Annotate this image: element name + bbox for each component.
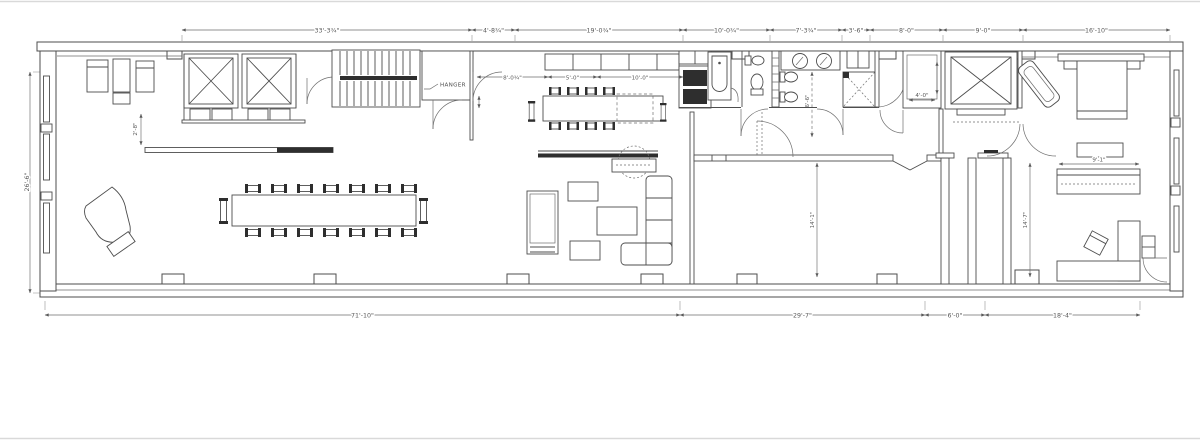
dim-left-1: 26'-6" xyxy=(24,172,31,191)
dim-top-8: 9'-0" xyxy=(976,27,991,34)
bed xyxy=(1058,54,1144,119)
conference-table xyxy=(219,184,428,237)
lounge-chairs xyxy=(87,59,154,104)
daybed xyxy=(527,191,558,254)
bathtub xyxy=(708,52,731,100)
media-wall xyxy=(538,146,658,178)
dim-bottom-2: 29'-7" xyxy=(793,312,812,319)
dimension-string-left: 26'-6" xyxy=(24,72,40,293)
bedroom-door xyxy=(1143,258,1167,282)
bed-wall-dimension: 9'-1" xyxy=(1059,158,1139,165)
dim-top-5: 7'-3¾" xyxy=(795,27,816,34)
bedroom-tv xyxy=(1077,143,1123,157)
great-room: 14'-1" 14'-7" xyxy=(690,109,1056,284)
kitchen-dimensions: 8'-0¾" 5'-0" 10'-0" xyxy=(477,75,683,81)
dim-bath-wall: 6'-6" xyxy=(805,94,811,108)
dim-top-6: 3'-6" xyxy=(849,27,864,34)
desk-chair xyxy=(1084,231,1108,255)
dimension-string-top: 33'-3¾" 4'-8¾" 19'-0¾" 10'-0¾" 7'-3¾" 3'… xyxy=(182,27,1170,41)
plumbing-wall xyxy=(772,51,779,107)
bedroom-chaise xyxy=(1017,59,1062,109)
linen-cabinet xyxy=(847,51,869,68)
dim-great-room: 14'-1" xyxy=(810,211,816,228)
dim-top-9: 16'-10" xyxy=(1085,27,1108,34)
dim-bottom-3: 6'-0" xyxy=(948,312,963,319)
kitchen-island-table xyxy=(528,87,666,130)
dim-top-2: 4'-8¾" xyxy=(483,27,504,34)
lobby-door xyxy=(307,77,334,104)
bathroom: 6'-6" xyxy=(679,51,905,157)
bath-wall-dimension: 6'-6" xyxy=(805,72,812,137)
floor-plan-page: 33'-3¾" 4'-8¾" 19'-0¾" 10'-0¾" 7'-3¾" 3'… xyxy=(0,0,1200,440)
ottoman-2 xyxy=(570,241,600,260)
hanger-label: HANGER xyxy=(440,83,466,89)
grand-piano xyxy=(85,187,136,256)
dim-bottom-4: 18'-4" xyxy=(1053,312,1072,319)
great-room-door xyxy=(757,121,793,157)
wc-door xyxy=(741,109,768,136)
hanger-closet: HANGER xyxy=(422,51,472,129)
dim-bench: 2'-8" xyxy=(133,122,139,136)
living-room xyxy=(527,146,672,265)
elevator-shaft-3 xyxy=(945,51,1022,115)
kitchen: 8'-0¾" 5'-0" 10'-0" xyxy=(477,51,711,130)
dim-top-1: 33'-3¾" xyxy=(314,27,339,34)
bench-dimension: 2'-8" xyxy=(133,114,141,145)
coffee-table xyxy=(597,207,637,235)
bench-rail xyxy=(145,148,333,153)
hall-door-2 xyxy=(877,79,905,107)
double-doors xyxy=(953,122,1056,156)
elevator-shaft-1 xyxy=(184,54,238,108)
bedroom: 9'-1" xyxy=(1017,54,1167,282)
floor-plan-drawing: 33'-3¾" 4'-8¾" 19'-0¾" 10'-0¾" 7'-3¾" 3'… xyxy=(0,0,1200,440)
sliding-partition-panels xyxy=(936,150,1011,284)
dim-kitchen-3: 10'-0" xyxy=(632,75,649,81)
dresser xyxy=(1057,169,1140,194)
partition-dimension: 14'-7" xyxy=(1023,163,1030,277)
wall-hung-fixtures xyxy=(780,72,798,102)
dim-kitchen-1: 8'-0¾" xyxy=(503,75,522,81)
staircase xyxy=(332,50,420,107)
great-room-dimension: 14'-1" xyxy=(810,163,817,277)
dimension-string-bottom: 71'-10" 29'-7" 6'-0" 18'-4" xyxy=(45,301,1140,319)
toilet xyxy=(751,74,763,95)
elevator-shaft-2 xyxy=(242,54,296,108)
entry-vestibule xyxy=(470,51,502,140)
dim-top-4: 10'-0¾" xyxy=(714,27,739,34)
dim-partition: 14'-7" xyxy=(1023,211,1029,228)
dim-kitchen-2: 5'-0" xyxy=(566,75,580,81)
ottoman-1 xyxy=(568,182,598,201)
hanger-door xyxy=(433,100,462,129)
wall-shelves xyxy=(1142,236,1155,258)
elevator-lobby xyxy=(182,54,334,123)
dim-closet: 4'-0" xyxy=(915,93,929,99)
dim-top-3: 19'-0¾" xyxy=(586,27,611,34)
dim-bottom-1: 71'-10" xyxy=(351,312,374,319)
closet-door xyxy=(880,110,903,133)
shower xyxy=(843,72,875,107)
double-lavatory xyxy=(781,51,840,70)
wc-sink xyxy=(745,56,764,65)
closet-room: 4'-0" xyxy=(880,51,941,133)
hall-door-1 xyxy=(817,109,843,135)
dim-bed-wall: 9'-1" xyxy=(1092,158,1106,164)
kitchen-appliance-block xyxy=(679,66,711,108)
vestibule-door xyxy=(473,72,502,101)
dim-top-7: 8'-0" xyxy=(899,27,914,34)
